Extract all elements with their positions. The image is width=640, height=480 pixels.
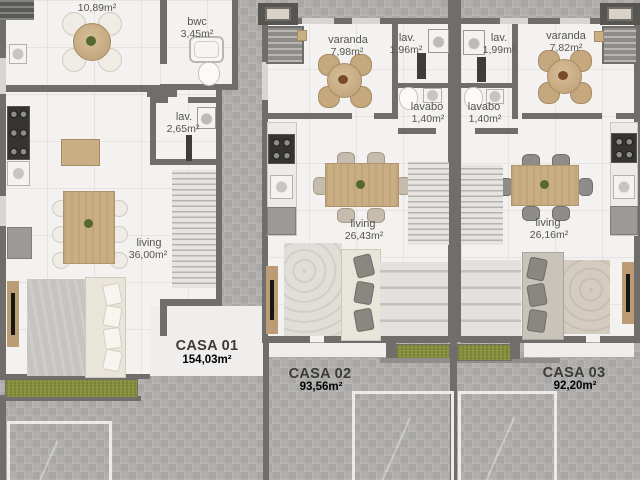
staircase: [408, 162, 449, 245]
wall: [512, 24, 518, 119]
wall: [392, 24, 398, 119]
washing-machine: [428, 29, 449, 53]
room-label-area: 2,65m²: [167, 123, 200, 135]
window-box: [600, 3, 640, 25]
wall: [268, 113, 352, 119]
room-label-area: 3,45m²: [181, 28, 214, 40]
plant: [84, 219, 93, 228]
wall: [386, 343, 396, 359]
dining-chair: [578, 178, 593, 196]
stair-landing: [380, 262, 448, 336]
wall: [522, 113, 602, 119]
window: [302, 18, 334, 24]
unit-label-area: 154,03m²: [182, 354, 231, 366]
rug: [27, 279, 86, 376]
parking-space: [458, 391, 557, 480]
room-label: lav.: [491, 32, 507, 44]
room-label: living: [535, 217, 560, 229]
casa-02-sidewalk: [267, 343, 386, 357]
unit-label-area: 92,20m²: [554, 380, 597, 392]
room-label-area: 7,82m²: [550, 42, 583, 54]
parking-space: [7, 421, 112, 480]
planter: [594, 31, 604, 42]
bathtub: [189, 36, 224, 63]
tv-panel: [622, 262, 634, 324]
window: [560, 18, 590, 24]
unit-label: CASA 02: [289, 366, 352, 382]
room-label-area: 1,40m²: [469, 113, 502, 125]
room-label-area: 7,98m²: [331, 46, 364, 58]
casa-03-sidewalk: [524, 343, 634, 357]
rug: [562, 260, 610, 334]
stove: [611, 133, 637, 163]
wall: [0, 0, 6, 380]
unit-label: CASA 01: [176, 338, 239, 354]
unit-label: CASA 03: [543, 365, 606, 381]
kitchen-sink: [270, 175, 293, 199]
kitchen-sink: [7, 161, 30, 186]
wall: [160, 306, 167, 336]
staircase: [461, 165, 503, 245]
pergola: [0, 0, 34, 20]
toilet: [198, 62, 220, 86]
unit-label-area: 93,56m²: [300, 381, 343, 393]
room-label: lav.: [176, 111, 192, 123]
wall: [262, 336, 310, 343]
lot-divider: [0, 395, 6, 480]
water-heater: [477, 57, 486, 82]
counter: [610, 206, 638, 235]
wall: [510, 343, 520, 359]
kitchen-sink: [613, 175, 635, 199]
stove: [268, 134, 295, 164]
wall: [160, 299, 222, 306]
grass-strip: [5, 379, 138, 398]
room-label: lavabo: [411, 101, 443, 113]
sofa-pillow: [353, 281, 375, 306]
room-label-area: 26,16m²: [530, 229, 569, 241]
sofa-pillow: [102, 305, 122, 329]
room-label: varanda: [546, 30, 586, 42]
window: [352, 18, 380, 24]
tv-panel: [266, 266, 278, 334]
wall: [616, 113, 634, 119]
staircase: [172, 170, 216, 288]
counter: [7, 227, 32, 259]
wall: [160, 0, 167, 64]
room-label: living: [350, 218, 375, 230]
centerpiece: [558, 71, 568, 80]
wall: [160, 84, 238, 90]
washing-machine: [197, 107, 216, 129]
room-label: lav.: [399, 32, 415, 44]
room-label: living: [136, 237, 161, 249]
room-label-area: 1,99m²: [483, 44, 516, 56]
lot-divider: [263, 342, 269, 480]
centerpiece: [338, 75, 348, 84]
room-label-area: 36,00m²: [129, 249, 168, 261]
kitchen-island: [61, 139, 100, 166]
plant: [86, 36, 96, 46]
parking-space: [352, 391, 454, 480]
sofa-pillow: [103, 327, 123, 350]
room-label: varanda: [328, 34, 368, 46]
wall: [6, 85, 150, 92]
sofa-pillow: [353, 308, 375, 333]
room-label-area: 10,89m²: [78, 2, 117, 14]
wall: [232, 0, 238, 90]
shelf: [602, 26, 638, 64]
party-wall: [448, 0, 461, 342]
grass-strip: [457, 344, 512, 361]
room-label-area: 1,40m²: [412, 113, 445, 125]
wall: [216, 90, 222, 306]
sofa-pillow: [527, 309, 548, 333]
rug: [284, 243, 342, 336]
sofa-pillow: [526, 283, 548, 308]
window: [262, 62, 268, 100]
stair-landing: [461, 260, 521, 336]
room-label-area: 26,43m²: [345, 230, 384, 242]
wall: [600, 336, 640, 343]
room-label: bwc: [187, 16, 207, 28]
window: [0, 196, 6, 226]
wall: [475, 128, 518, 134]
wall: [398, 128, 436, 134]
stove: [7, 106, 30, 160]
wall: [150, 97, 156, 165]
window-box: [258, 3, 298, 25]
plant: [356, 180, 365, 189]
ironing-board: [186, 135, 192, 161]
room-label-area: 1,96m²: [390, 44, 423, 56]
water-heater: [417, 53, 426, 79]
room-label: lavabo: [468, 101, 500, 113]
counter: [267, 207, 296, 235]
floor-plan: 10,89m² bwc 3,45m² lav. 2,65m² living 36…: [0, 0, 640, 480]
planter: [297, 30, 307, 41]
cabinet-sink: [9, 44, 27, 64]
plant: [540, 180, 549, 189]
tv-panel: [7, 281, 19, 347]
